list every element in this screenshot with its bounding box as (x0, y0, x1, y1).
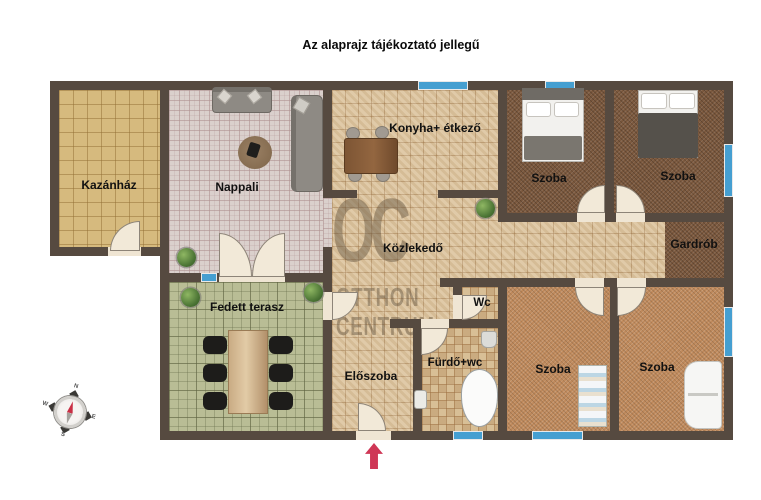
plant-icon (476, 199, 495, 218)
window-konyha (418, 81, 468, 90)
window-szoba-felso-2 (724, 144, 733, 197)
passage-nappali-kozlekedo (323, 198, 332, 247)
room-label-szoba-felso-1: Szoba (531, 171, 566, 185)
entrance-arrow-icon (365, 443, 383, 469)
door-opening-szoba-felso-2 (616, 213, 645, 222)
door-opening-wc (453, 295, 462, 319)
room-label-szoba-also-1: Szoba (535, 362, 570, 376)
chair-icon (269, 336, 293, 354)
toilet-icon (481, 331, 497, 348)
room-label-nappali: Nappali (215, 180, 258, 194)
compass-label-w: W (41, 401, 48, 408)
bathtub-icon (461, 369, 498, 427)
door-opening-szoba-also-2 (617, 278, 646, 287)
wall-wc-top (440, 278, 507, 287)
room-label-wc: Wc (473, 297, 490, 309)
sink-icon (414, 390, 427, 409)
room-label-gardrob: Gardrób (670, 237, 717, 251)
pillow-icon (554, 102, 579, 117)
compass-rose: N E S W (41, 383, 100, 442)
compass-label-e: E (91, 414, 96, 421)
plan-disclaimer-title: Az alaprajz tájékoztató jellegű (302, 38, 479, 52)
room-label-konyha: Konyha+ étkező (389, 121, 481, 135)
wall-nappali-konyha (323, 81, 332, 198)
blanket-icon (638, 113, 698, 158)
pillow-icon (526, 102, 551, 117)
wall-outer-bottom (160, 431, 733, 440)
dining-table-icon (344, 138, 398, 174)
bed-headboard-icon (522, 88, 584, 100)
pillow-icon (669, 93, 695, 109)
compass-label-n: N (73, 383, 79, 390)
chair-icon (203, 364, 227, 382)
window-szoba-also-2 (724, 307, 733, 357)
compass-label-s: S (60, 432, 65, 439)
floorplan-image: Az alaprajz tájékoztató jellegű OC OTTHO… (0, 0, 761, 500)
wall-konyha-stub-right (438, 190, 507, 198)
chair-icon (269, 364, 293, 382)
room-label-kozlekedo: Közlekedő (383, 241, 443, 255)
door-opening-terasz-eloszoba (323, 292, 332, 320)
plant-icon (177, 248, 196, 267)
window-nappali-terasz (201, 273, 217, 282)
room-label-eloszoba: Előszoba (345, 369, 398, 383)
wall-szoba-felso-divider (605, 81, 614, 222)
pillow-icon (641, 93, 667, 109)
room-label-kazanhaz: Kazánház (81, 178, 136, 192)
daybed-seam (688, 393, 718, 396)
room-label-fedett-terasz: Fedett terasz (210, 300, 284, 314)
wall-furdo-szoba (498, 278, 507, 440)
window-szoba-also-1 (532, 431, 583, 440)
floor-kazanhaz (59, 90, 160, 247)
door-opening-entrance (356, 431, 391, 440)
wall-szoba-also-top (498, 278, 733, 287)
bed-icon (578, 365, 607, 427)
wall-konyha-stub-left (332, 190, 357, 198)
wall-konyha-szoba (498, 81, 507, 222)
chair-icon (269, 392, 293, 410)
wall-outer-left (160, 81, 169, 440)
terrace-table-icon (228, 330, 268, 414)
plant-icon (181, 288, 200, 307)
room-label-furdo: Fürdő+wc (428, 357, 483, 369)
chair-icon (203, 336, 227, 354)
chair-icon (203, 392, 227, 410)
door-opening-szoba-also-1 (575, 278, 604, 287)
wall-outer-right (724, 81, 733, 440)
door-opening-furdo (421, 319, 449, 328)
wall-outer-top (50, 81, 733, 90)
blanket-icon (524, 136, 582, 160)
room-label-szoba-also-2: Szoba (639, 360, 674, 374)
plant-icon (304, 283, 323, 302)
room-label-szoba-felso-2: Szoba (660, 169, 695, 183)
door-opening-szoba-felso-1 (577, 213, 605, 222)
watermark-logo: OC (332, 186, 406, 276)
window-furdo (453, 431, 483, 440)
wall-kazanhaz-left (50, 81, 59, 256)
